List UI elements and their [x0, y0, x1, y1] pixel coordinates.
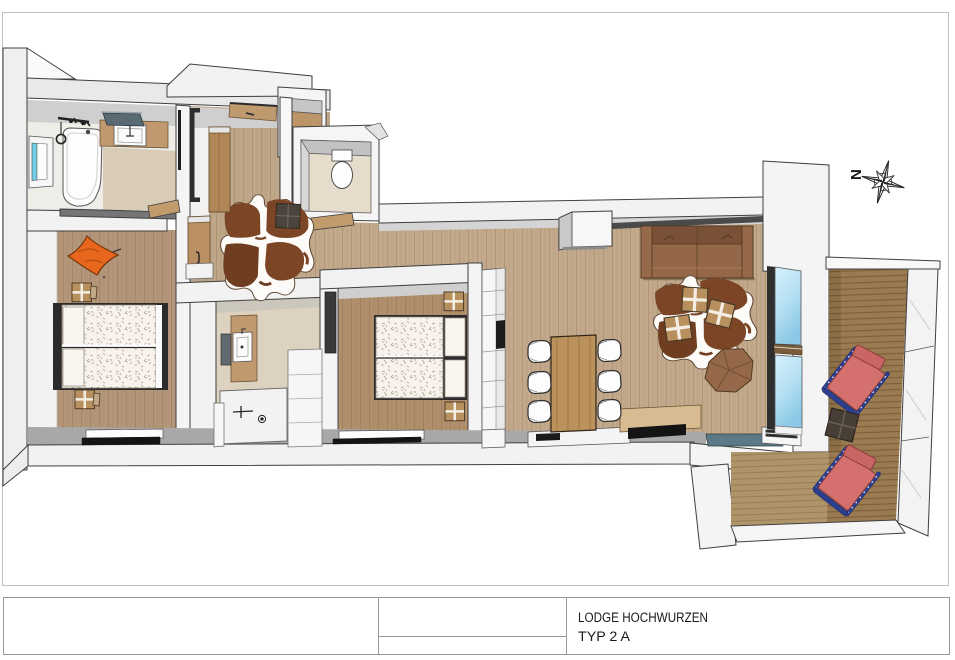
- svg-text:LODGE HOCHWURZEN: LODGE HOCHWURZEN: [578, 610, 708, 625]
- svg-text:N: N: [848, 169, 865, 180]
- svg-text:TYP 2 A: TYP 2 A: [578, 629, 630, 644]
